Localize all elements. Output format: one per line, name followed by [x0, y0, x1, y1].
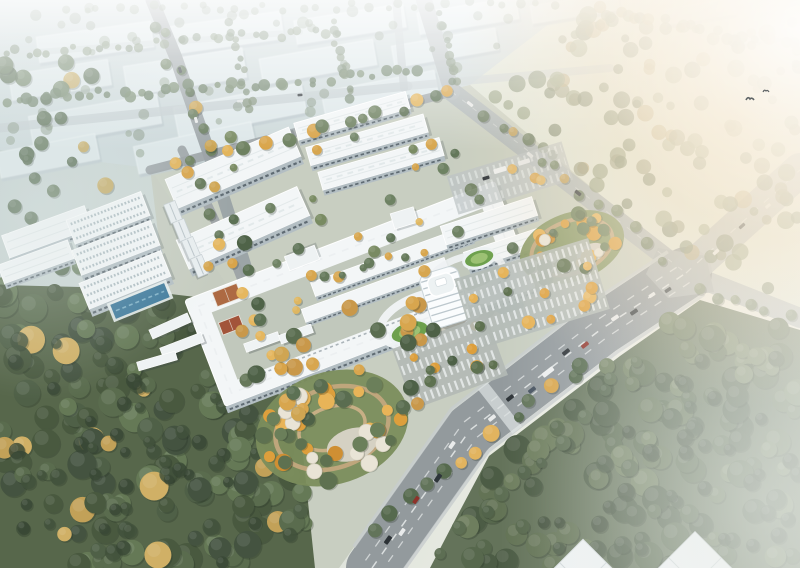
- aerial-rendering: [0, 0, 800, 568]
- aerial-rendering-stage: [0, 0, 800, 568]
